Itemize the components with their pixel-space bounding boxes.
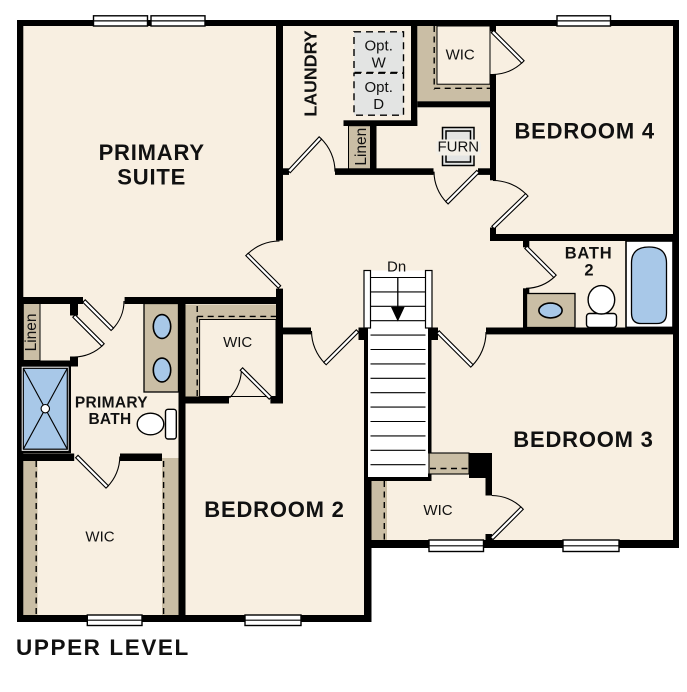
svg-text:FURN: FURN bbox=[437, 139, 479, 156]
svg-text:BEDROOM 2: BEDROOM 2 bbox=[204, 497, 344, 522]
svg-text:WIC: WIC bbox=[85, 528, 114, 545]
svg-text:Dn: Dn bbox=[387, 258, 406, 275]
svg-text:PRIMARY: PRIMARY bbox=[75, 395, 148, 412]
svg-text:Opt.: Opt. bbox=[365, 38, 393, 55]
svg-text:PRIMARY: PRIMARY bbox=[99, 140, 205, 165]
svg-text:WIC: WIC bbox=[423, 502, 452, 519]
svg-text:BATH: BATH bbox=[565, 245, 613, 263]
svg-text:Linen: Linen bbox=[353, 128, 370, 166]
svg-text:D: D bbox=[373, 96, 384, 113]
svg-text:SUITE: SUITE bbox=[117, 164, 186, 189]
svg-text:W: W bbox=[372, 55, 387, 72]
svg-text:BEDROOM 3: BEDROOM 3 bbox=[513, 427, 653, 452]
svg-text:LAUNDRY: LAUNDRY bbox=[301, 30, 321, 116]
svg-text:Linen: Linen bbox=[23, 313, 40, 351]
svg-text:WIC: WIC bbox=[223, 334, 252, 351]
svg-text:UPPER LEVEL: UPPER LEVEL bbox=[16, 635, 190, 660]
svg-text:BATH: BATH bbox=[88, 411, 131, 428]
svg-text:WIC: WIC bbox=[446, 47, 475, 64]
svg-text:BEDROOM 4: BEDROOM 4 bbox=[514, 119, 654, 144]
svg-text:Opt.: Opt. bbox=[365, 79, 393, 96]
svg-text:2: 2 bbox=[584, 262, 593, 280]
